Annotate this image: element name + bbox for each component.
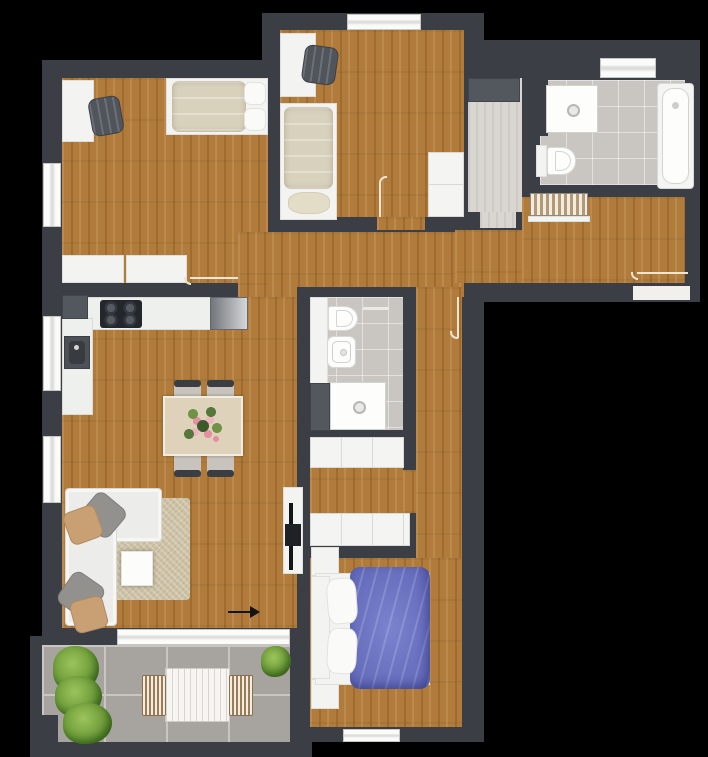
bedroom2-door-hook — [379, 176, 387, 183]
doors — [0, 0, 708, 757]
floor-plan-canvas — [0, 0, 708, 757]
bedroom1-door-leaf — [190, 277, 238, 279]
entrance-door-leaf — [637, 272, 688, 274]
bedroom2-door-leaf — [379, 182, 381, 217]
bathroom1-door-hook — [450, 331, 458, 339]
bedroom1-door-hook — [184, 277, 191, 285]
entrance-door-hook — [631, 272, 638, 280]
